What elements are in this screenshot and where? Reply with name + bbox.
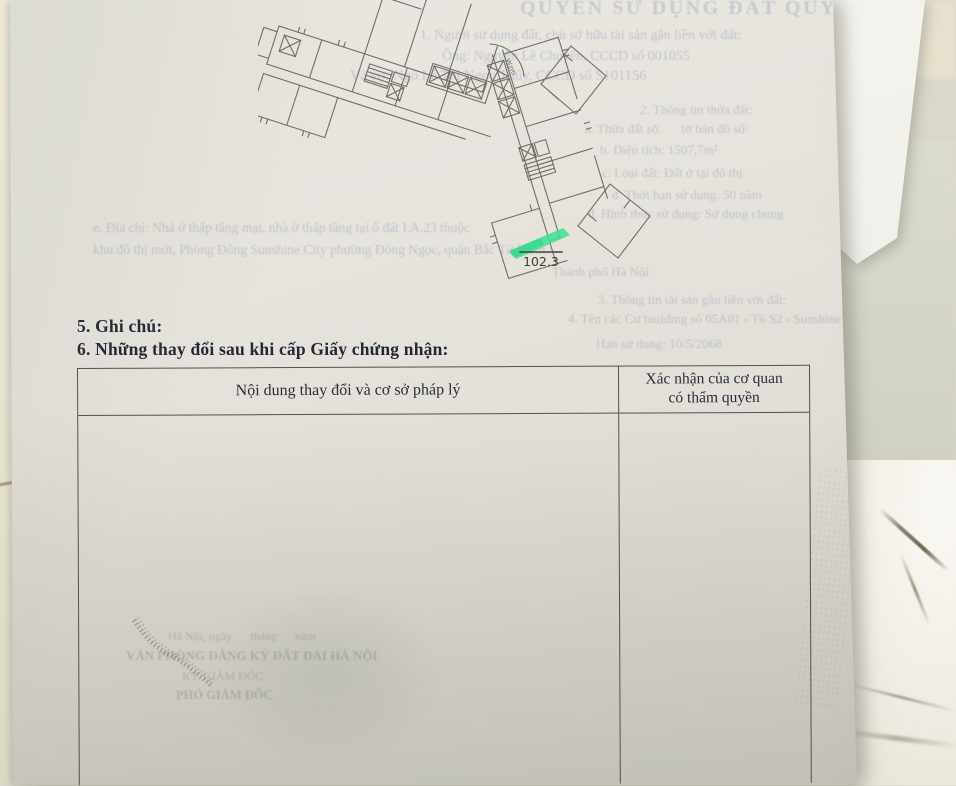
photo-of-certificate: QUYỀN SỬ DỤNG ĐẤT QUYỀN SỞ HỮU 1. Người … (0, 0, 956, 785)
paper-sheet-wrap: QUYỀN SỬ DỤNG ĐẤT QUYỀN SỞ HỮU 1. Người … (0, 0, 956, 785)
certificate-page: QUYỀN SỬ DỤNG ĐẤT QUYỀN SỞ HỮU 1. Người … (0, 0, 956, 785)
edge-shade-overlay (0, 0, 956, 785)
